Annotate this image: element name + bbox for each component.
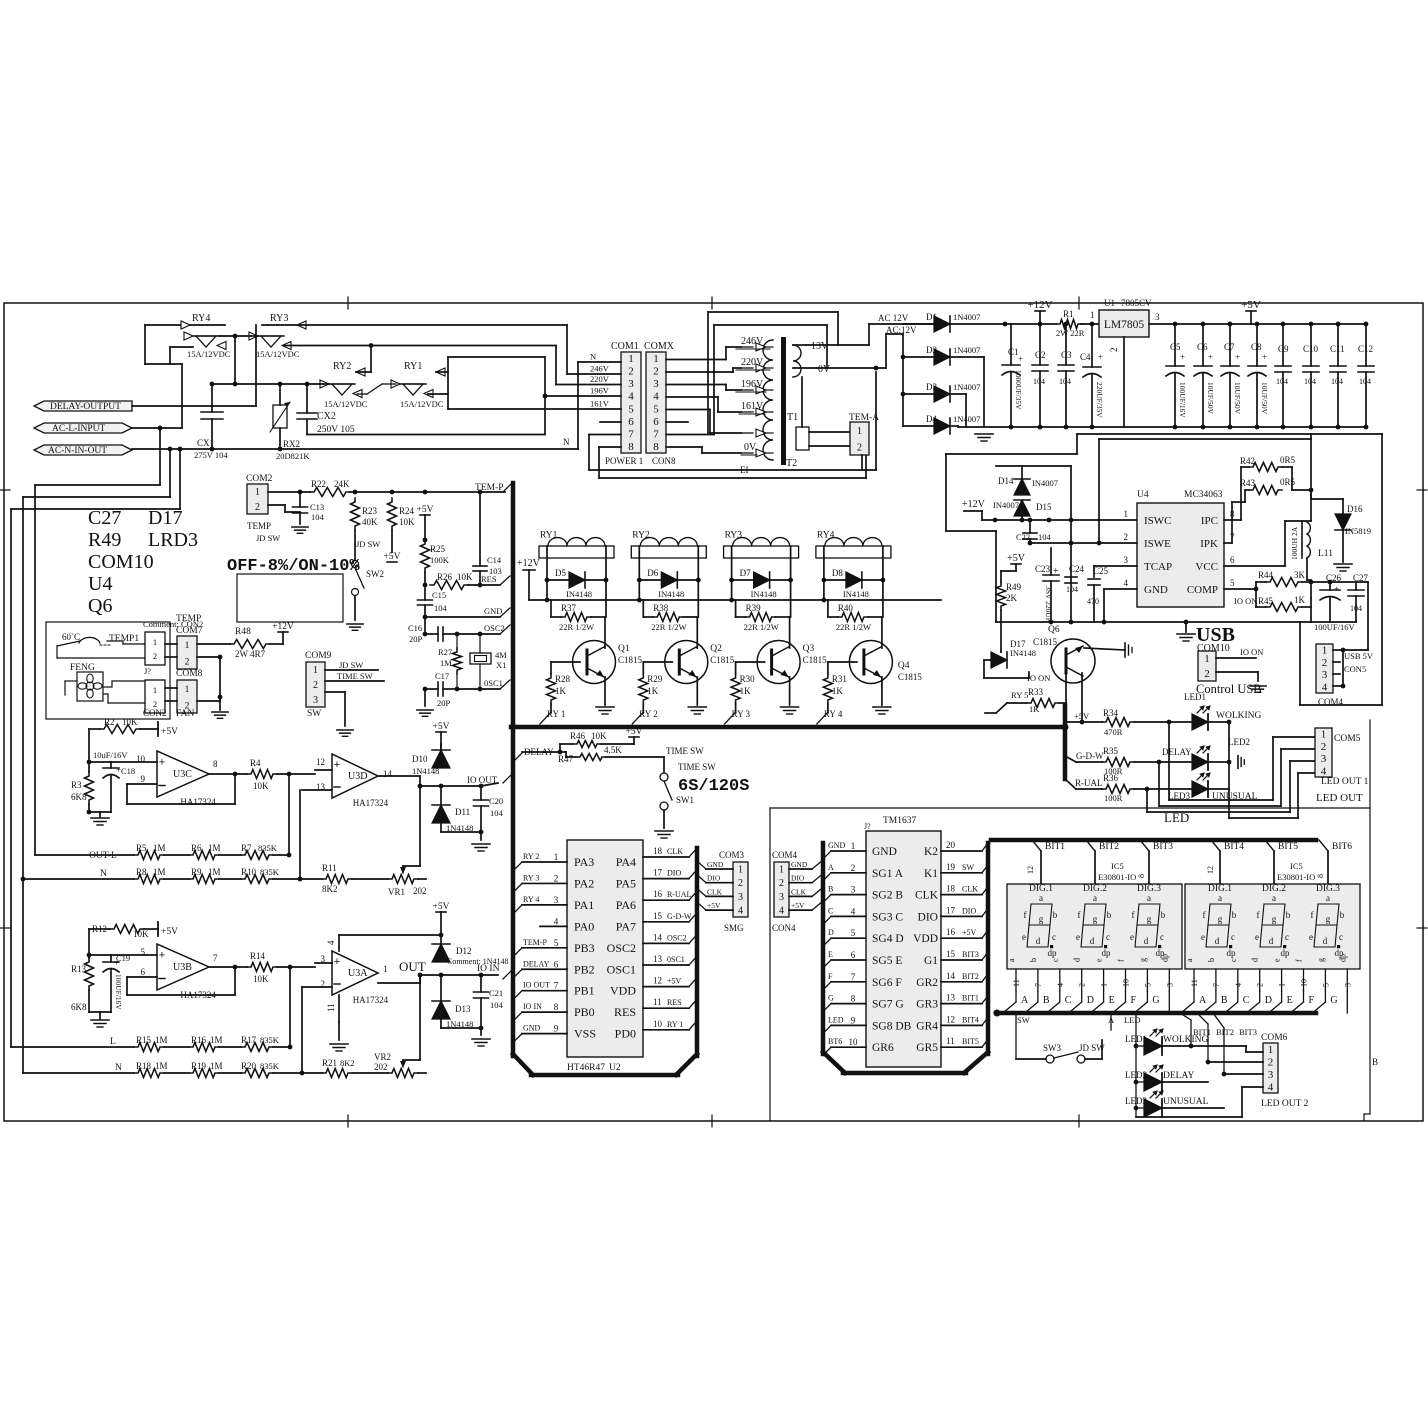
svg-text:+: + <box>1334 584 1339 594</box>
svg-text:CON8: CON8 <box>652 456 676 466</box>
svg-text:4: 4 <box>554 916 559 926</box>
svg-text:20P: 20P <box>409 634 423 644</box>
svg-text:R1: R1 <box>1063 309 1074 319</box>
svg-text:220V: 220V <box>741 357 764 368</box>
svg-text:12: 12 <box>316 757 325 767</box>
svg-text:C24: C24 <box>1069 564 1085 574</box>
svg-text:3: 3 <box>313 695 318 706</box>
svg-text:4: 4 <box>1321 765 1327 777</box>
svg-text:b: b <box>1286 910 1291 920</box>
svg-text:e: e <box>1022 932 1026 942</box>
svg-text:JD SW: JD SW <box>356 539 380 549</box>
svg-text:10K: 10K <box>133 929 149 939</box>
svg-text:g: g <box>1218 914 1223 924</box>
svg-text:b: b <box>1053 910 1058 920</box>
svg-text:BIT1: BIT1 <box>1045 842 1065 852</box>
svg-text:1000UF/35V: 1000UF/35V <box>1014 370 1023 410</box>
svg-text:3: 3 <box>1343 983 1352 987</box>
svg-text:DIO: DIO <box>707 874 721 883</box>
svg-text:SW: SW <box>962 863 974 872</box>
svg-text:7805CV: 7805CV <box>1121 298 1152 308</box>
svg-text:Comment: 1N4148: Comment: 1N4148 <box>447 957 509 966</box>
svg-text:AC:12V: AC:12V <box>886 325 917 335</box>
svg-text:1: 1 <box>851 841 856 851</box>
svg-text:b: b <box>1207 958 1216 962</box>
svg-text:161V: 161V <box>741 401 764 412</box>
svg-text:PA0: PA0 <box>574 919 594 933</box>
svg-text:16: 16 <box>653 889 663 899</box>
svg-text:C17: C17 <box>435 671 449 681</box>
svg-text:D13: D13 <box>455 1004 471 1014</box>
svg-text:GND: GND <box>791 860 808 869</box>
svg-text:N: N <box>563 437 570 447</box>
svg-text:2: 2 <box>1321 741 1327 753</box>
svg-text:f: f <box>1295 959 1304 962</box>
svg-text:1: 1 <box>255 487 260 498</box>
svg-text:104: 104 <box>1038 532 1052 542</box>
svg-text:G1: G1 <box>924 955 938 967</box>
svg-text:BIT3: BIT3 <box>1153 842 1173 852</box>
svg-text:+5V: +5V <box>626 727 643 737</box>
svg-text:IC5: IC5 <box>1111 861 1124 871</box>
svg-text:2: 2 <box>313 680 318 691</box>
svg-text:BIT5: BIT5 <box>1278 842 1298 852</box>
svg-text:7: 7 <box>1034 983 1043 987</box>
svg-text:15: 15 <box>653 911 663 921</box>
svg-text:196V: 196V <box>590 386 610 396</box>
svg-text:LED OUT: LED OUT <box>1316 792 1363 804</box>
svg-text:G-D-W: G-D-W <box>1076 751 1104 761</box>
svg-text:1M: 1M <box>210 1061 223 1071</box>
svg-text:5: 5 <box>851 928 856 938</box>
svg-text:e: e <box>1255 932 1259 942</box>
svg-text:Q3: Q3 <box>803 644 815 654</box>
svg-text:2K: 2K <box>1006 593 1018 603</box>
svg-text:4: 4 <box>1322 681 1328 693</box>
svg-text:CLK: CLK <box>707 887 723 896</box>
svg-text:1: 1 <box>1278 983 1287 987</box>
svg-text:1: 1 <box>1321 729 1327 741</box>
svg-text:3SV 220UF: 3SV 220UF <box>1044 586 1053 622</box>
svg-text:BIT4: BIT4 <box>962 1015 979 1024</box>
svg-text:24K: 24K <box>334 479 350 489</box>
svg-text:R13: R13 <box>71 964 87 974</box>
svg-text:3: 3 <box>1322 669 1328 681</box>
svg-text:2W 22R: 2W 22R <box>1056 328 1085 338</box>
svg-text:c: c <box>1285 932 1289 942</box>
svg-text:D8: D8 <box>832 568 843 578</box>
svg-text:R15: R15 <box>136 1035 152 1045</box>
svg-text:Q1: Q1 <box>618 644 630 654</box>
svg-text:40K: 40K <box>362 517 378 527</box>
svg-text:SG3 C: SG3 C <box>872 911 903 923</box>
svg-text:+: + <box>1180 352 1185 362</box>
svg-text:3: 3 <box>1155 312 1160 322</box>
svg-text:202: 202 <box>413 886 427 896</box>
svg-text:10UF/50V: 10UF/50V <box>1233 382 1242 415</box>
svg-text:PA6: PA6 <box>616 898 636 912</box>
svg-text:U3A: U3A <box>348 968 368 979</box>
svg-text:COM6: COM6 <box>1261 1033 1288 1043</box>
svg-text:C25: C25 <box>1093 566 1109 576</box>
svg-text:IPK: IPK <box>1200 538 1218 550</box>
svg-text:15A/12VDC: 15A/12VDC <box>187 349 231 359</box>
svg-text:22R 1/2W: 22R 1/2W <box>836 622 871 632</box>
svg-text:4: 4 <box>738 906 743 917</box>
svg-text:1K: 1K <box>832 686 844 696</box>
svg-text:R11: R11 <box>322 863 337 873</box>
svg-text:C: C <box>1243 995 1250 1006</box>
svg-text:RES: RES <box>614 1005 636 1019</box>
svg-text:220V: 220V <box>590 374 610 384</box>
svg-text:COM5: COM5 <box>1334 734 1361 744</box>
svg-text:SW2: SW2 <box>366 569 384 579</box>
svg-text:R22: R22 <box>311 479 326 489</box>
svg-text:IN4148: IN4148 <box>658 589 684 599</box>
svg-text:D11: D11 <box>455 807 470 817</box>
svg-text:104: 104 <box>311 512 325 522</box>
svg-text:12: 12 <box>946 1014 955 1024</box>
svg-text:f: f <box>1257 910 1260 920</box>
svg-text:202: 202 <box>374 1062 388 1072</box>
svg-text:BIT6: BIT6 <box>1332 842 1352 852</box>
svg-text:PA3: PA3 <box>574 855 594 869</box>
svg-text:104: 104 <box>1359 377 1371 386</box>
svg-text:LED: LED <box>1164 810 1189 825</box>
svg-text:COM9: COM9 <box>305 651 332 661</box>
svg-text:+: + <box>334 956 340 968</box>
svg-text:3: 3 <box>1321 753 1327 765</box>
svg-text:5: 5 <box>653 403 659 415</box>
svg-text:dp: dp <box>1338 954 1347 962</box>
svg-text:SG7 G: SG7 G <box>872 999 904 1011</box>
svg-text:PB3: PB3 <box>574 941 595 955</box>
svg-text:ISWC: ISWC <box>1144 515 1172 527</box>
svg-text:R4: R4 <box>250 758 261 768</box>
svg-text:C1815: C1815 <box>1033 637 1058 647</box>
svg-text:LED: LED <box>1124 1015 1141 1025</box>
svg-text:U4: U4 <box>88 573 112 595</box>
svg-text:+5V: +5V <box>433 722 450 732</box>
svg-text:22R 1/2W: 22R 1/2W <box>744 622 779 632</box>
svg-text:1: 1 <box>1322 645 1328 657</box>
svg-text:15A/12VDC: 15A/12VDC <box>400 399 444 409</box>
svg-text:IN4148: IN4148 <box>843 589 869 599</box>
svg-text:L11: L11 <box>1318 549 1333 559</box>
svg-text:B: B <box>1043 995 1050 1006</box>
svg-text:220UF/35V: 220UF/35V <box>1095 382 1104 418</box>
svg-text:DELAY: DELAY <box>1162 747 1192 757</box>
svg-text:275V 104: 275V 104 <box>194 450 228 460</box>
svg-text:250V 105: 250V 105 <box>317 425 355 435</box>
svg-text:R14: R14 <box>250 951 266 961</box>
svg-text:1K: 1K <box>740 686 752 696</box>
svg-text:100UF/16V: 100UF/16V <box>114 974 123 1010</box>
svg-text:g: g <box>1138 958 1147 962</box>
svg-text:0R5: 0R5 <box>1280 477 1296 487</box>
svg-text:2: 2 <box>1256 983 1265 987</box>
svg-text:dp: dp <box>1048 948 1058 958</box>
svg-text:R6: R6 <box>191 843 202 853</box>
svg-text:f: f <box>1311 910 1314 920</box>
svg-text:c: c <box>1052 932 1056 942</box>
svg-text:e: e <box>1273 958 1282 962</box>
svg-text:C15: C15 <box>432 590 446 600</box>
svg-text:+5V: +5V <box>433 902 450 912</box>
svg-text:4: 4 <box>851 906 856 916</box>
svg-text:7: 7 <box>653 429 659 441</box>
svg-text:g: g <box>1326 914 1331 924</box>
svg-text:14: 14 <box>383 769 393 779</box>
svg-text:104: 104 <box>1276 377 1288 386</box>
svg-text:1K: 1K <box>555 686 567 696</box>
svg-text:+5V: +5V <box>1241 299 1261 311</box>
svg-text:LED OUT 1: LED OUT 1 <box>1321 777 1369 787</box>
svg-text:d: d <box>1323 936 1328 946</box>
svg-text:B: B <box>1372 1057 1378 1067</box>
svg-text:RY2: RY2 <box>333 361 351 372</box>
svg-text:A: A <box>828 863 834 872</box>
svg-text:PA4: PA4 <box>616 855 636 869</box>
svg-text:1: 1 <box>185 641 190 651</box>
svg-text:VR1: VR1 <box>388 887 405 897</box>
svg-text:1K: 1K <box>1294 595 1306 605</box>
svg-text:R8: R8 <box>136 867 147 877</box>
svg-text:PB2: PB2 <box>574 962 595 976</box>
svg-text:D14: D14 <box>998 476 1014 486</box>
svg-text:CLK: CLK <box>962 885 978 894</box>
svg-text:+5V: +5V <box>707 901 721 910</box>
svg-text:T2: T2 <box>786 458 797 469</box>
svg-text:a: a <box>1147 893 1151 903</box>
svg-text:IO OUT: IO OUT <box>523 981 550 990</box>
svg-text:G-D-W: G-D-W <box>667 912 692 921</box>
svg-text:WOLKING: WOLKING <box>1163 1035 1209 1045</box>
svg-text:CLK: CLK <box>791 887 807 896</box>
svg-text:c: c <box>1051 958 1060 962</box>
svg-text:LED2: LED2 <box>1228 737 1250 747</box>
svg-text:D17: D17 <box>148 507 182 529</box>
svg-text:b: b <box>1232 910 1237 920</box>
svg-text:8: 8 <box>653 441 659 453</box>
svg-text:SW3: SW3 <box>1043 1043 1062 1053</box>
svg-text:HA17324: HA17324 <box>180 797 216 807</box>
svg-text:F: F <box>828 972 833 981</box>
svg-text:E: E <box>1287 995 1293 1006</box>
svg-text:JD SW: JD SW <box>256 533 280 543</box>
svg-text:5: 5 <box>1230 578 1235 588</box>
svg-text:e: e <box>1076 932 1080 942</box>
svg-text:6K8: 6K8 <box>71 792 87 802</box>
svg-text:2: 2 <box>1204 668 1210 680</box>
svg-text:104: 104 <box>1331 377 1343 386</box>
svg-text:MC34063: MC34063 <box>1184 490 1223 500</box>
svg-text:IN4007: IN4007 <box>993 500 1019 510</box>
svg-text:RY1: RY1 <box>404 361 422 372</box>
svg-text:U3B: U3B <box>173 962 192 973</box>
svg-text:R19: R19 <box>191 1061 207 1071</box>
svg-text:TCAP: TCAP <box>1144 561 1172 573</box>
svg-text:C1815: C1815 <box>898 672 923 682</box>
svg-text:C22: C22 <box>1016 532 1030 542</box>
svg-text:GND: GND <box>484 606 502 616</box>
svg-text:DELAY-OUTPUT: DELAY-OUTPUT <box>50 402 121 412</box>
svg-text:3K: 3K <box>1294 570 1306 580</box>
svg-text:11: 11 <box>1012 979 1021 987</box>
svg-text:10uF/16V: 10uF/16V <box>93 750 128 760</box>
svg-text:R21: R21 <box>322 1058 337 1068</box>
svg-text:a: a <box>1185 958 1194 962</box>
svg-text:RY4: RY4 <box>192 313 210 324</box>
svg-text:Q4: Q4 <box>898 661 910 671</box>
svg-text:5: 5 <box>1143 983 1152 987</box>
svg-text:246V: 246V <box>590 364 610 374</box>
svg-text:a: a <box>1007 958 1016 962</box>
svg-text:18: 18 <box>946 884 956 894</box>
svg-text:C: C <box>828 906 833 915</box>
svg-text:BIT2: BIT2 <box>962 972 979 981</box>
svg-text:4: 4 <box>326 940 336 945</box>
svg-text:a: a <box>1039 893 1043 903</box>
svg-text:COM3: COM3 <box>719 850 745 860</box>
svg-text:2: 2 <box>1322 657 1328 669</box>
svg-text:835K: 835K <box>258 843 278 853</box>
svg-text:dp: dp <box>1281 948 1291 958</box>
svg-text:8K2: 8K2 <box>340 1058 355 1068</box>
svg-text:7: 7 <box>213 953 218 963</box>
svg-text:246V: 246V <box>741 336 764 347</box>
svg-text:+5V: +5V <box>384 552 401 562</box>
svg-text:C14: C14 <box>487 555 502 565</box>
svg-text:SG4 D: SG4 D <box>872 933 904 945</box>
svg-text:SG1 A: SG1 A <box>872 868 904 880</box>
svg-text:2: 2 <box>738 878 743 889</box>
svg-text:3: 3 <box>1165 983 1174 987</box>
svg-text:1N4007: 1N4007 <box>953 382 980 392</box>
svg-text:+5V: +5V <box>1074 711 1090 721</box>
svg-text:A: A <box>1199 995 1207 1006</box>
svg-text:R3: R3 <box>71 780 82 790</box>
svg-text:15: 15 <box>946 949 956 959</box>
svg-text:1N4007: 1N4007 <box>953 312 980 322</box>
svg-text:+5V: +5V <box>161 727 178 737</box>
svg-text:R27: R27 <box>438 647 452 657</box>
svg-text:R16: R16 <box>191 1035 207 1045</box>
svg-text:OSC1: OSC1 <box>607 962 636 976</box>
svg-text:10K: 10K <box>253 781 269 791</box>
svg-text:CLK: CLK <box>915 890 939 902</box>
svg-text:PA2: PA2 <box>574 876 594 890</box>
svg-text:JD SW: JD SW <box>339 660 363 670</box>
svg-text:c: c <box>1229 958 1238 962</box>
svg-text:J?: J? <box>864 822 871 831</box>
svg-text:Q6: Q6 <box>1048 625 1060 635</box>
svg-text:f: f <box>1132 910 1135 920</box>
svg-text:VDD: VDD <box>913 933 938 945</box>
svg-text:e: e <box>1095 958 1104 962</box>
svg-text:1: 1 <box>628 353 634 365</box>
svg-text:RY1: RY1 <box>540 531 558 541</box>
svg-text:IO ON: IO ON <box>1240 647 1263 657</box>
svg-text:CLK: CLK <box>667 847 683 856</box>
svg-text:d: d <box>1251 958 1260 962</box>
svg-text:BIT5: BIT5 <box>962 1037 979 1046</box>
svg-text:BIT2: BIT2 <box>1099 842 1119 852</box>
svg-text:+12V: +12V <box>272 622 294 632</box>
svg-text:14: 14 <box>946 971 956 981</box>
svg-text:10K: 10K <box>591 731 607 741</box>
svg-text:D6: D6 <box>647 568 658 578</box>
svg-text:OUT-L: OUT-L <box>89 851 117 861</box>
svg-text:+: + <box>159 757 165 769</box>
svg-text:4: 4 <box>1268 1081 1274 1093</box>
svg-text:BIT2: BIT2 <box>1216 1027 1234 1037</box>
svg-text:C21: C21 <box>489 988 503 998</box>
svg-text:8K2: 8K2 <box>322 884 338 894</box>
svg-text:5: 5 <box>554 938 559 948</box>
svg-text:FAN: FAN <box>176 709 194 719</box>
svg-text:RES: RES <box>667 998 682 1007</box>
svg-text:c: c <box>1160 932 1164 942</box>
svg-text:R26: R26 <box>437 572 453 582</box>
svg-text:+: + <box>334 759 340 771</box>
svg-text:LED1: LED1 <box>1184 692 1206 702</box>
svg-text:20: 20 <box>946 840 956 850</box>
svg-text:15A/12VDC: 15A/12VDC <box>324 399 368 409</box>
svg-text:C1815: C1815 <box>803 655 828 665</box>
svg-text:TEMP1: TEMP1 <box>109 634 139 644</box>
svg-text:6: 6 <box>1230 555 1235 565</box>
svg-text:4: 4 <box>1124 578 1129 588</box>
svg-text:U3D: U3D <box>348 771 367 782</box>
svg-text:11: 11 <box>946 1036 955 1046</box>
svg-text:100UF/16V: 100UF/16V <box>1178 382 1187 418</box>
svg-text:6K8: 6K8 <box>71 1002 87 1012</box>
svg-text:PB1: PB1 <box>574 984 595 998</box>
svg-text:RX2: RX2 <box>283 439 300 449</box>
svg-text:R18: R18 <box>136 1061 152 1071</box>
svg-text:1N4007: 1N4007 <box>953 345 980 355</box>
svg-text:f: f <box>1117 959 1126 962</box>
svg-text:dp: dp <box>1227 948 1237 958</box>
svg-text:2: 2 <box>255 502 260 513</box>
svg-text:103: 103 <box>489 566 502 576</box>
svg-text:470: 470 <box>1087 597 1099 606</box>
svg-text:IO OUT: IO OUT <box>467 775 498 785</box>
svg-text:b: b <box>1107 910 1112 920</box>
svg-text:1: 1 <box>1100 983 1109 987</box>
svg-text:10: 10 <box>849 1037 859 1047</box>
svg-text:104: 104 <box>1304 377 1316 386</box>
svg-text:G: G <box>1152 995 1159 1006</box>
svg-text:+: + <box>1018 354 1023 364</box>
svg-text:OFF-8%/ON-10%: OFF-8%/ON-10% <box>227 557 360 576</box>
svg-text:CON4: CON4 <box>772 923 796 933</box>
svg-text:1: 1 <box>779 864 784 875</box>
svg-text:IN4148: IN4148 <box>751 589 777 599</box>
svg-text:N: N <box>100 869 107 879</box>
svg-text:ISWE: ISWE <box>1144 538 1171 550</box>
svg-text:IN4148: IN4148 <box>566 589 592 599</box>
svg-text:470R: 470R <box>1104 727 1123 737</box>
svg-text:1: 1 <box>1204 653 1210 665</box>
svg-text:f: f <box>1203 910 1206 920</box>
svg-text:COM7: COM7 <box>176 626 203 636</box>
svg-text:1: 1 <box>857 426 862 437</box>
svg-text:R28: R28 <box>555 674 571 684</box>
svg-text:0SC1: 0SC1 <box>484 678 503 688</box>
svg-text:DIO: DIO <box>962 906 976 915</box>
